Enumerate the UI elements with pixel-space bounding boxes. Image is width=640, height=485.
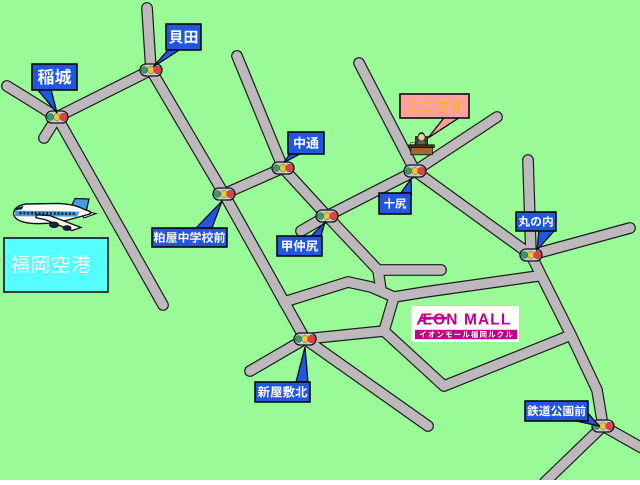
svg-text:ÆON MALL: ÆON MALL bbox=[417, 312, 512, 329]
